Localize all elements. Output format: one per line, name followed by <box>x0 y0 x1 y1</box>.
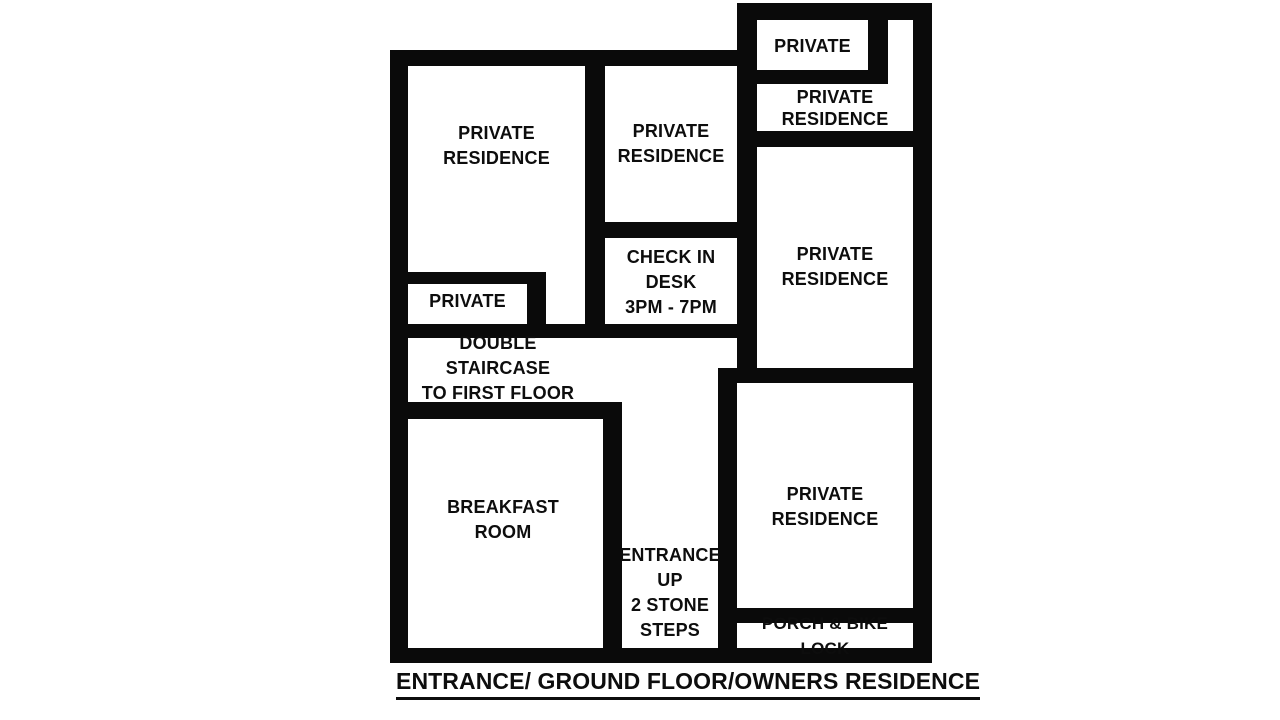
room-label-right-private-residence: PRIVATE RESIDENCE <box>757 147 913 368</box>
room-label-top-left-private-residence: PRIVATE RESIDENCE <box>408 66 585 226</box>
wall-right-column-divider-mid <box>718 368 932 383</box>
room-label-middle-private-residence: PRIVATE RESIDENCE <box>605 66 737 222</box>
room-label-porch-bike-lock: PORCH & BIKE LOCK <box>737 623 913 648</box>
wall-top-main <box>390 50 757 66</box>
wall-outer-left <box>390 50 408 663</box>
wall-below-private-top-right <box>737 70 888 84</box>
room-label-breakfast-room: BREAKFAST ROOM <box>408 419 598 621</box>
wall-private-top-right-side <box>868 20 888 83</box>
wall-outer-right <box>913 3 932 663</box>
room-label-double-staircase: DOUBLE STAIRCASE TO FIRST FLOOR <box>408 336 588 400</box>
wall-right-column-divider-upper <box>737 131 932 147</box>
wall-right-column-top <box>737 3 932 20</box>
room-label-top-right-private-residence: PRIVATE RESIDENCE <box>757 84 913 131</box>
room-label-private-top-right: PRIVATE <box>757 20 868 72</box>
wall-below-middle-residence <box>585 222 757 238</box>
room-label-bottom-right-private-residence: PRIVATE RESIDENCE <box>737 383 913 608</box>
room-label-check-in-desk: CHECK IN DESK 3PM - 7PM <box>605 238 737 326</box>
room-label-entrance-steps: ENTRANCE UP 2 STONE STEPS <box>622 540 718 645</box>
wall-divider-topleft-middle <box>585 50 605 338</box>
floor-plan: PRIVATE RESIDENCE PRIVATE RESIDENCE CHEC… <box>0 0 1280 720</box>
wall-right-column-left <box>737 3 757 383</box>
plan-title: ENTRANCE/ GROUND FLOOR/OWNERS RESIDENCE <box>396 668 980 700</box>
room-label-private-left: PRIVATE <box>408 281 527 322</box>
